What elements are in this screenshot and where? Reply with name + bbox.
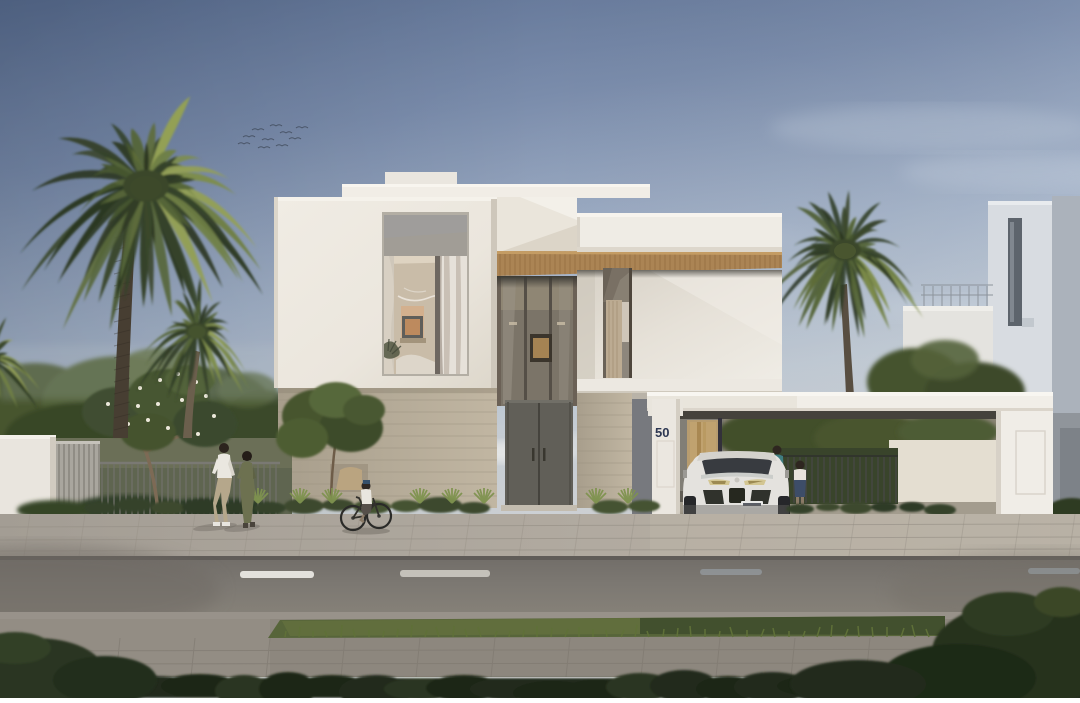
svg-text:50: 50 (655, 425, 669, 440)
